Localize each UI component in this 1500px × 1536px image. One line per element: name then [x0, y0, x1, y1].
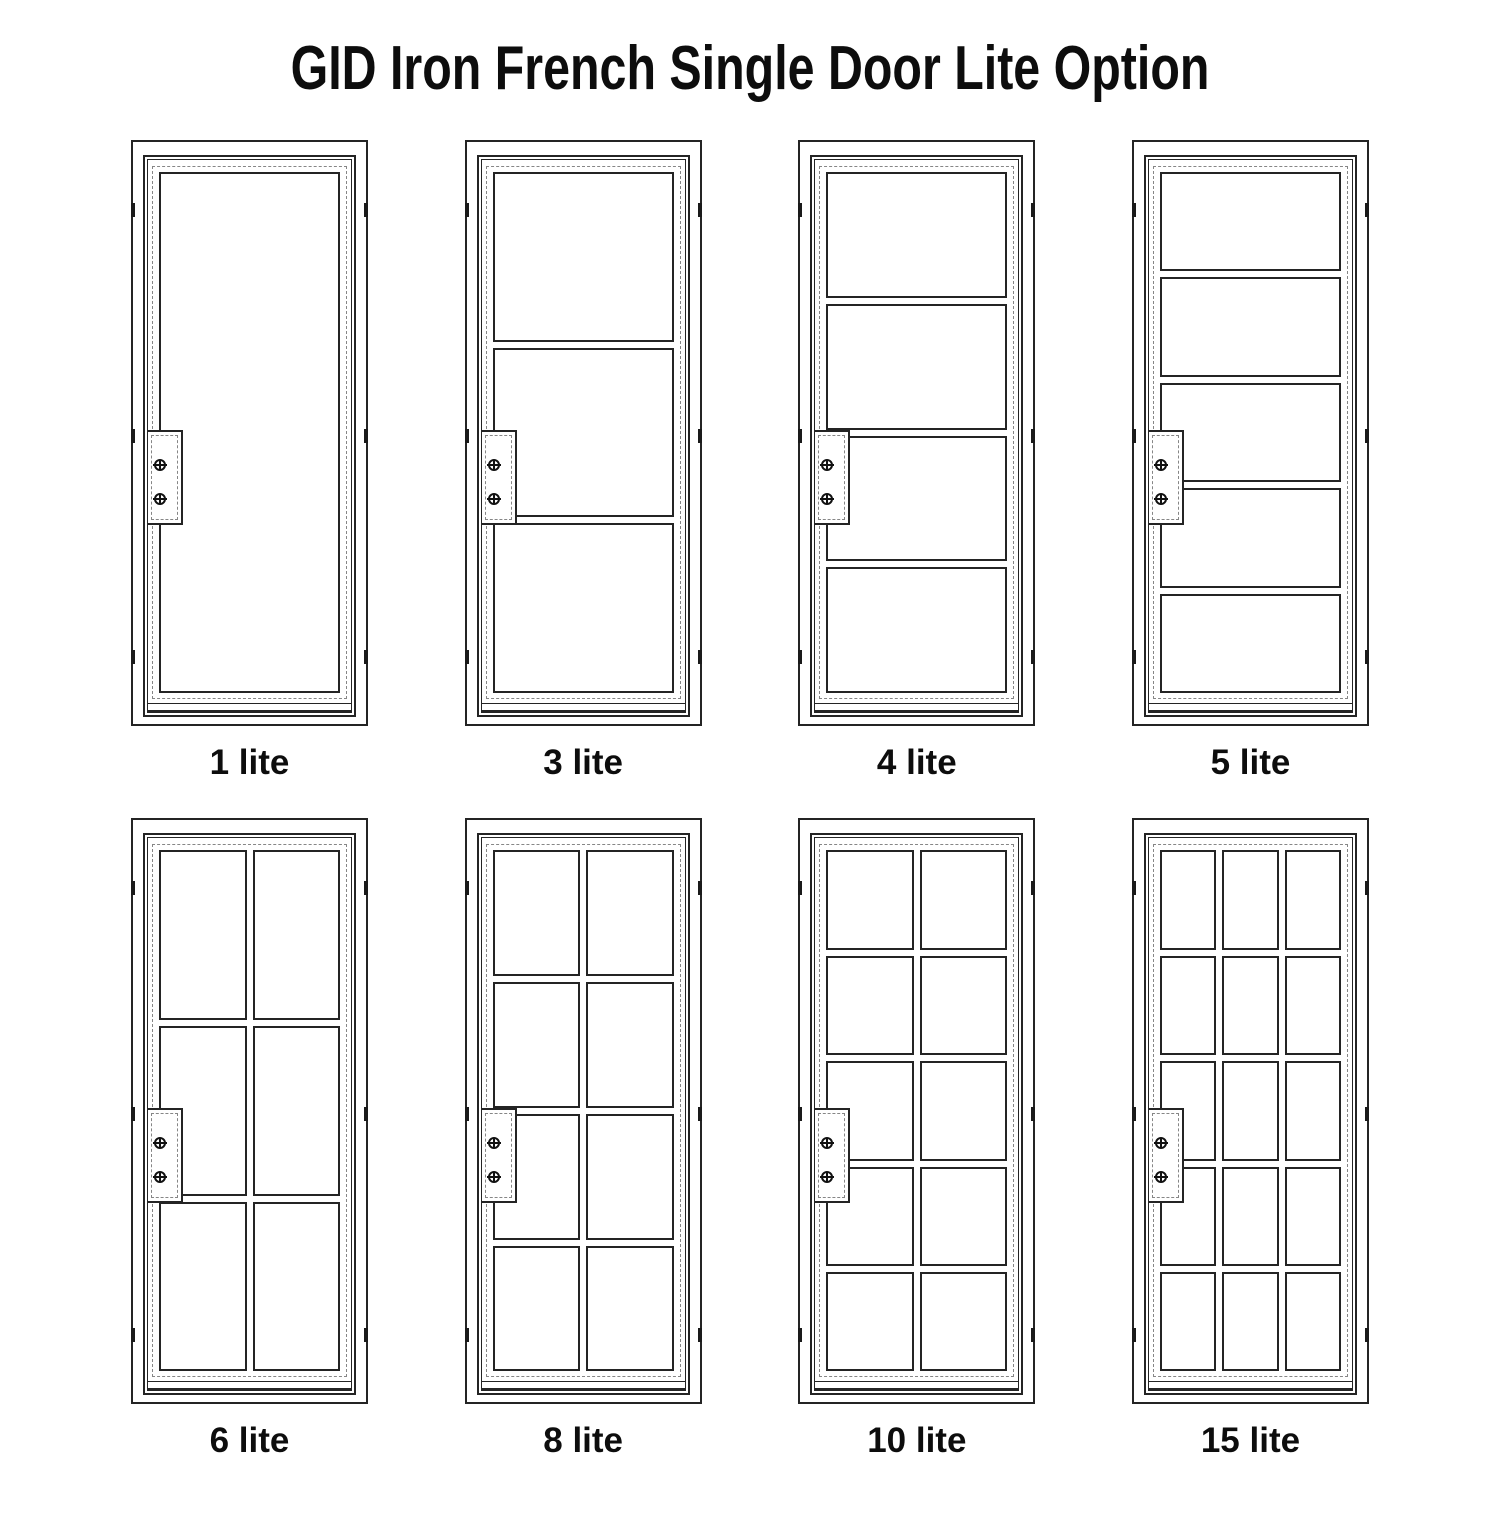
glass-pane — [920, 850, 1008, 949]
screw-icon — [821, 1171, 833, 1183]
page-title: GID Iron French Single Door Lite Option — [165, 36, 1335, 101]
glass-pane — [1285, 956, 1341, 1055]
glass-pane — [493, 172, 674, 342]
hinge-tick-icon — [1365, 203, 1369, 217]
lock-box — [1149, 1108, 1184, 1203]
screw-icon — [154, 1137, 166, 1149]
hinge-tick-icon — [465, 1328, 469, 1342]
glass-pane — [1222, 1061, 1278, 1160]
door-label: 4 lite — [798, 743, 1035, 783]
door-option-3-lite: 3 lite — [465, 140, 702, 783]
hinge-tick-icon — [698, 1328, 702, 1342]
glass-pane — [1285, 1272, 1341, 1371]
door-option-1-lite: 1 lite — [131, 140, 368, 783]
door-drawing-6-lite — [131, 818, 368, 1404]
screw-icon — [154, 1171, 166, 1183]
hinge-tick-icon — [131, 1107, 135, 1121]
hinge-tick-icon — [1132, 1107, 1136, 1121]
hinge-tick-icon — [698, 881, 702, 895]
glass-pane — [920, 1061, 1008, 1160]
glass-pane — [1222, 850, 1278, 949]
screw-icon — [1155, 459, 1167, 471]
glass-pane — [1160, 172, 1341, 271]
hinge-tick-icon — [698, 1107, 702, 1121]
hinge-tick-icon — [698, 429, 702, 443]
door-option-6-lite: 6 lite — [131, 818, 368, 1461]
hinge-tick-icon — [364, 650, 368, 664]
hinge-tick-icon — [465, 203, 469, 217]
door-label: 1 lite — [131, 743, 368, 783]
glass-pane — [826, 956, 914, 1055]
hinge-tick-icon — [1365, 650, 1369, 664]
hinge-tick-icon — [1365, 429, 1369, 443]
lite-grid — [493, 172, 674, 693]
hinge-tick-icon — [364, 429, 368, 443]
glass-pane — [159, 1202, 247, 1372]
glass-pane — [826, 304, 1007, 430]
lite-grid — [159, 850, 340, 1371]
glass-pane — [159, 850, 247, 1020]
door-label: 8 lite — [465, 1421, 702, 1461]
screw-icon — [154, 493, 166, 505]
lite-grid — [1160, 850, 1341, 1371]
glass-pane — [1222, 1167, 1278, 1266]
glass-pane — [1160, 277, 1341, 376]
hinge-tick-icon — [1132, 650, 1136, 664]
door-row-1: 1 lite3 lite4 lite5 lite — [131, 140, 1369, 783]
screw-icon — [821, 493, 833, 505]
glass-pane — [493, 1246, 581, 1372]
door-label: 6 lite — [131, 1421, 368, 1461]
hinge-tick-icon — [698, 650, 702, 664]
hinge-tick-icon — [465, 1107, 469, 1121]
glass-pane — [1222, 1272, 1278, 1371]
hinge-tick-icon — [1031, 1328, 1035, 1342]
door-drawing-5-lite — [1132, 140, 1369, 726]
glass-pane — [586, 1246, 674, 1372]
glass-pane — [253, 1026, 341, 1196]
screw-icon — [1155, 493, 1167, 505]
glass-pane — [920, 956, 1008, 1055]
hinge-tick-icon — [1031, 203, 1035, 217]
lite-grid — [159, 172, 340, 693]
screw-icon — [488, 493, 500, 505]
screw-icon — [821, 1137, 833, 1149]
door-drawing-15-lite — [1132, 818, 1369, 1404]
door-option-4-lite: 4 lite — [798, 140, 1035, 783]
hinge-tick-icon — [465, 881, 469, 895]
hinge-tick-icon — [1365, 881, 1369, 895]
glass-pane — [253, 1202, 341, 1372]
lock-box — [815, 430, 850, 525]
door-label: 15 lite — [1132, 1421, 1369, 1461]
hinge-tick-icon — [1031, 881, 1035, 895]
hinge-tick-icon — [1031, 429, 1035, 443]
hinge-tick-icon — [1132, 429, 1136, 443]
hinge-tick-icon — [798, 429, 802, 443]
hinge-tick-icon — [465, 650, 469, 664]
glass-pane — [586, 1114, 674, 1240]
door-drawing-4-lite — [798, 140, 1035, 726]
hinge-tick-icon — [1365, 1107, 1369, 1121]
door-option-8-lite: 8 lite — [465, 818, 702, 1461]
glass-pane — [826, 1272, 914, 1371]
hinge-tick-icon — [364, 1107, 368, 1121]
lock-box — [815, 1108, 850, 1203]
glass-pane — [1222, 956, 1278, 1055]
screw-icon — [1155, 1137, 1167, 1149]
hinge-tick-icon — [131, 881, 135, 895]
glass-pane — [493, 850, 581, 976]
door-row-2: 6 lite8 lite10 lite15 lite — [131, 818, 1369, 1461]
glass-pane — [253, 850, 341, 1020]
glass-pane — [1285, 1167, 1341, 1266]
hinge-tick-icon — [798, 650, 802, 664]
door-option-5-lite: 5 lite — [1132, 140, 1369, 783]
hinge-tick-icon — [1132, 203, 1136, 217]
hinge-tick-icon — [798, 203, 802, 217]
hinge-tick-icon — [131, 650, 135, 664]
glass-pane — [1285, 1061, 1341, 1160]
glass-pane — [1160, 956, 1216, 1055]
lock-box — [148, 1108, 183, 1203]
door-label: 3 lite — [465, 743, 702, 783]
glass-pane — [159, 172, 340, 693]
glass-pane — [826, 172, 1007, 298]
door-option-10-lite: 10 lite — [798, 818, 1035, 1461]
hinge-tick-icon — [364, 1328, 368, 1342]
hinge-tick-icon — [1031, 650, 1035, 664]
door-drawing-3-lite — [465, 140, 702, 726]
screw-icon — [488, 1171, 500, 1183]
glass-pane — [920, 1272, 1008, 1371]
hinge-tick-icon — [1132, 881, 1136, 895]
glass-pane — [586, 850, 674, 976]
hinge-tick-icon — [131, 429, 135, 443]
hinge-tick-icon — [798, 1328, 802, 1342]
glass-pane — [826, 567, 1007, 693]
door-drawing-10-lite — [798, 818, 1035, 1404]
glass-pane — [586, 982, 674, 1108]
glass-pane — [920, 1167, 1008, 1266]
hinge-tick-icon — [131, 203, 135, 217]
door-label: 5 lite — [1132, 743, 1369, 783]
glass-pane — [493, 982, 581, 1108]
glass-pane — [493, 523, 674, 693]
screw-icon — [1155, 1171, 1167, 1183]
hinge-tick-icon — [798, 1107, 802, 1121]
lock-box — [148, 430, 183, 525]
screw-icon — [488, 459, 500, 471]
lock-box — [482, 1108, 517, 1203]
glass-pane — [1160, 850, 1216, 949]
lite-grid — [826, 850, 1007, 1371]
screw-icon — [821, 459, 833, 471]
hinge-tick-icon — [364, 203, 368, 217]
door-drawing-8-lite — [465, 818, 702, 1404]
screw-icon — [488, 1137, 500, 1149]
hinge-tick-icon — [364, 881, 368, 895]
glass-pane — [493, 348, 674, 518]
hinge-tick-icon — [798, 881, 802, 895]
glass-pane — [1285, 850, 1341, 949]
glass-pane — [826, 436, 1007, 562]
door-label: 10 lite — [798, 1421, 1035, 1461]
lite-grid — [826, 172, 1007, 693]
glass-pane — [1160, 488, 1341, 587]
hinge-tick-icon — [131, 1328, 135, 1342]
lock-box — [482, 430, 517, 525]
hinge-tick-icon — [698, 203, 702, 217]
hinge-tick-icon — [1132, 1328, 1136, 1342]
page: GID Iron French Single Door Lite Option … — [0, 36, 1500, 1536]
lite-grid — [1160, 172, 1341, 693]
screw-icon — [154, 459, 166, 471]
hinge-tick-icon — [465, 429, 469, 443]
door-drawing-1-lite — [131, 140, 368, 726]
hinge-tick-icon — [1031, 1107, 1035, 1121]
glass-pane — [826, 850, 914, 949]
glass-pane — [1160, 1272, 1216, 1371]
door-option-15-lite: 15 lite — [1132, 818, 1369, 1461]
glass-pane — [1160, 594, 1341, 693]
lite-grid — [493, 850, 674, 1371]
hinge-tick-icon — [1365, 1328, 1369, 1342]
lock-box — [1149, 430, 1184, 525]
glass-pane — [1160, 383, 1341, 482]
